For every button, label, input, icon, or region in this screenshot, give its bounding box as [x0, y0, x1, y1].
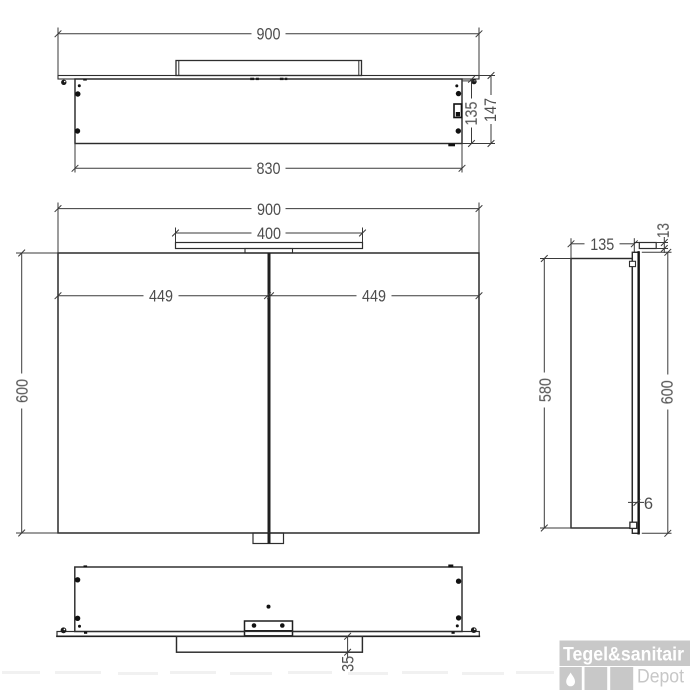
svg-text:600: 600 [659, 380, 677, 404]
svg-text:Depot: Depot [637, 667, 685, 688]
svg-text:900: 900 [257, 201, 281, 219]
svg-text:147: 147 [482, 98, 500, 122]
svg-text:449: 449 [362, 288, 386, 306]
svg-text:13: 13 [655, 223, 673, 238]
svg-text:580: 580 [537, 378, 555, 402]
svg-text:830: 830 [257, 160, 281, 178]
svg-text:35: 35 [339, 656, 357, 672]
svg-text:400: 400 [257, 225, 281, 243]
svg-text:135: 135 [463, 102, 481, 126]
svg-text:600: 600 [14, 379, 32, 403]
svg-text:135: 135 [590, 236, 614, 254]
svg-text:449: 449 [149, 288, 173, 306]
svg-text:900: 900 [257, 26, 281, 44]
svg-text:Tegel&sanitair: Tegel&sanitair [563, 644, 684, 666]
svg-text:6: 6 [644, 495, 653, 513]
